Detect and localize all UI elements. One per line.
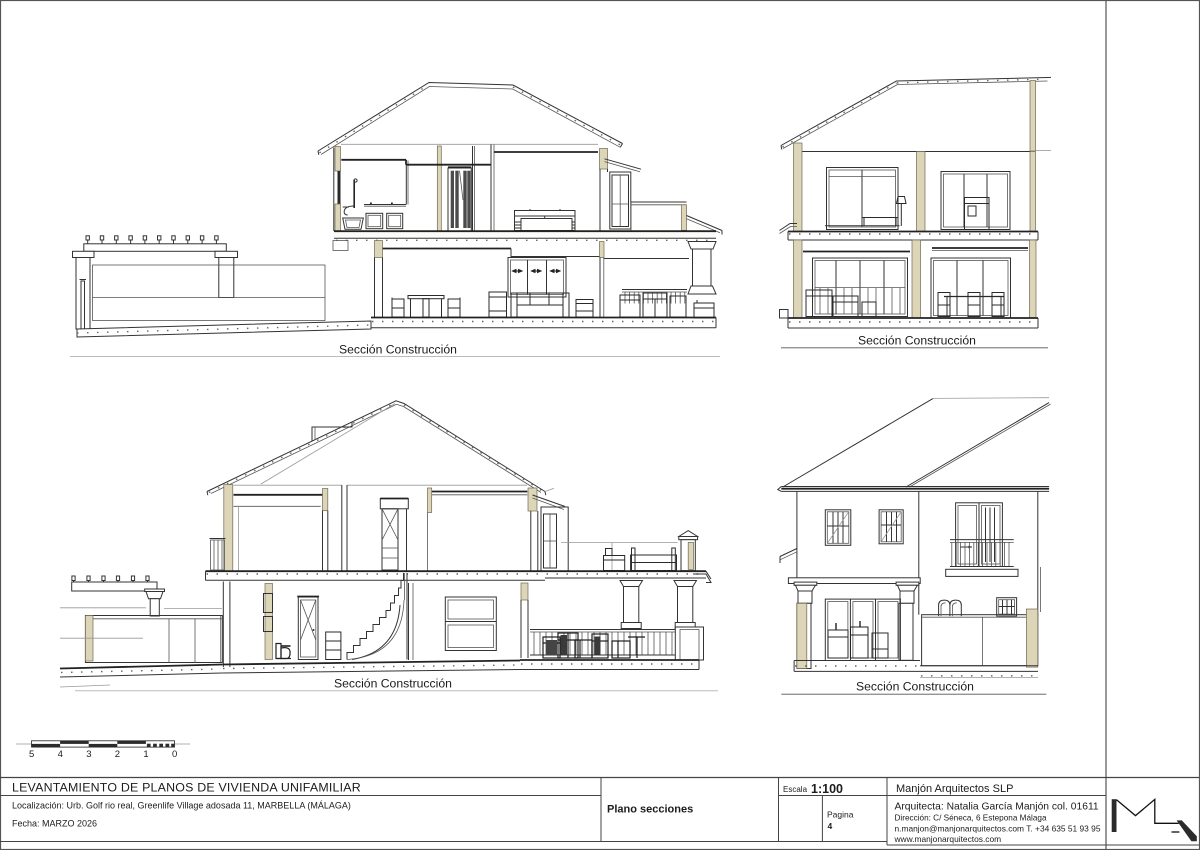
svg-text:1:100: 1:100 bbox=[811, 782, 843, 796]
svg-text:Escala: Escala bbox=[783, 785, 808, 794]
svg-text:4: 4 bbox=[828, 821, 833, 831]
svg-text:0: 0 bbox=[172, 749, 177, 760]
svg-text:Plano secciones: Plano secciones bbox=[607, 804, 693, 816]
svg-text:Sección Construcción: Sección Construcción bbox=[858, 334, 976, 348]
svg-text:Fecha: MARZO 2026: Fecha: MARZO 2026 bbox=[12, 819, 97, 829]
svg-text:4: 4 bbox=[58, 749, 63, 760]
svg-text:Arquitecta: Natalia García Man: Arquitecta: Natalia García Manjón col. 0… bbox=[895, 802, 1099, 813]
svg-text:Manjón Arquitectos SLP: Manjón Arquitectos SLP bbox=[896, 783, 1013, 795]
svg-text:Localización: Urb. Golf rio r: Localización: Urb. Golf rio real, Greenl… bbox=[12, 801, 351, 811]
svg-text:Dirección: C/ Séneca, 6 Estepo: Dirección: C/ Séneca, 6 Estepona Málaga bbox=[895, 814, 1047, 823]
svg-text:3: 3 bbox=[86, 749, 91, 760]
svg-text:5: 5 bbox=[29, 749, 34, 760]
svg-text:n.manjon@manjonarquitectos.com: n.manjon@manjonarquitectos.com T. +34 63… bbox=[895, 824, 1101, 834]
svg-text:Sección Construcción: Sección Construcción bbox=[339, 343, 457, 357]
svg-text:1: 1 bbox=[143, 749, 148, 760]
svg-text:www.manjonarquitectos.com: www.manjonarquitectos.com bbox=[894, 834, 1002, 844]
svg-text:Pagina: Pagina bbox=[827, 810, 854, 820]
svg-text:LEVANTAMIENTO DE PLANOS DE VIV: LEVANTAMIENTO DE PLANOS DE VIVIENDA UNIF… bbox=[12, 781, 361, 795]
svg-text:Sección Construcción: Sección Construcción bbox=[856, 680, 974, 694]
svg-text:Sección Construcción: Sección Construcción bbox=[334, 677, 452, 691]
svg-text:2: 2 bbox=[115, 749, 120, 760]
